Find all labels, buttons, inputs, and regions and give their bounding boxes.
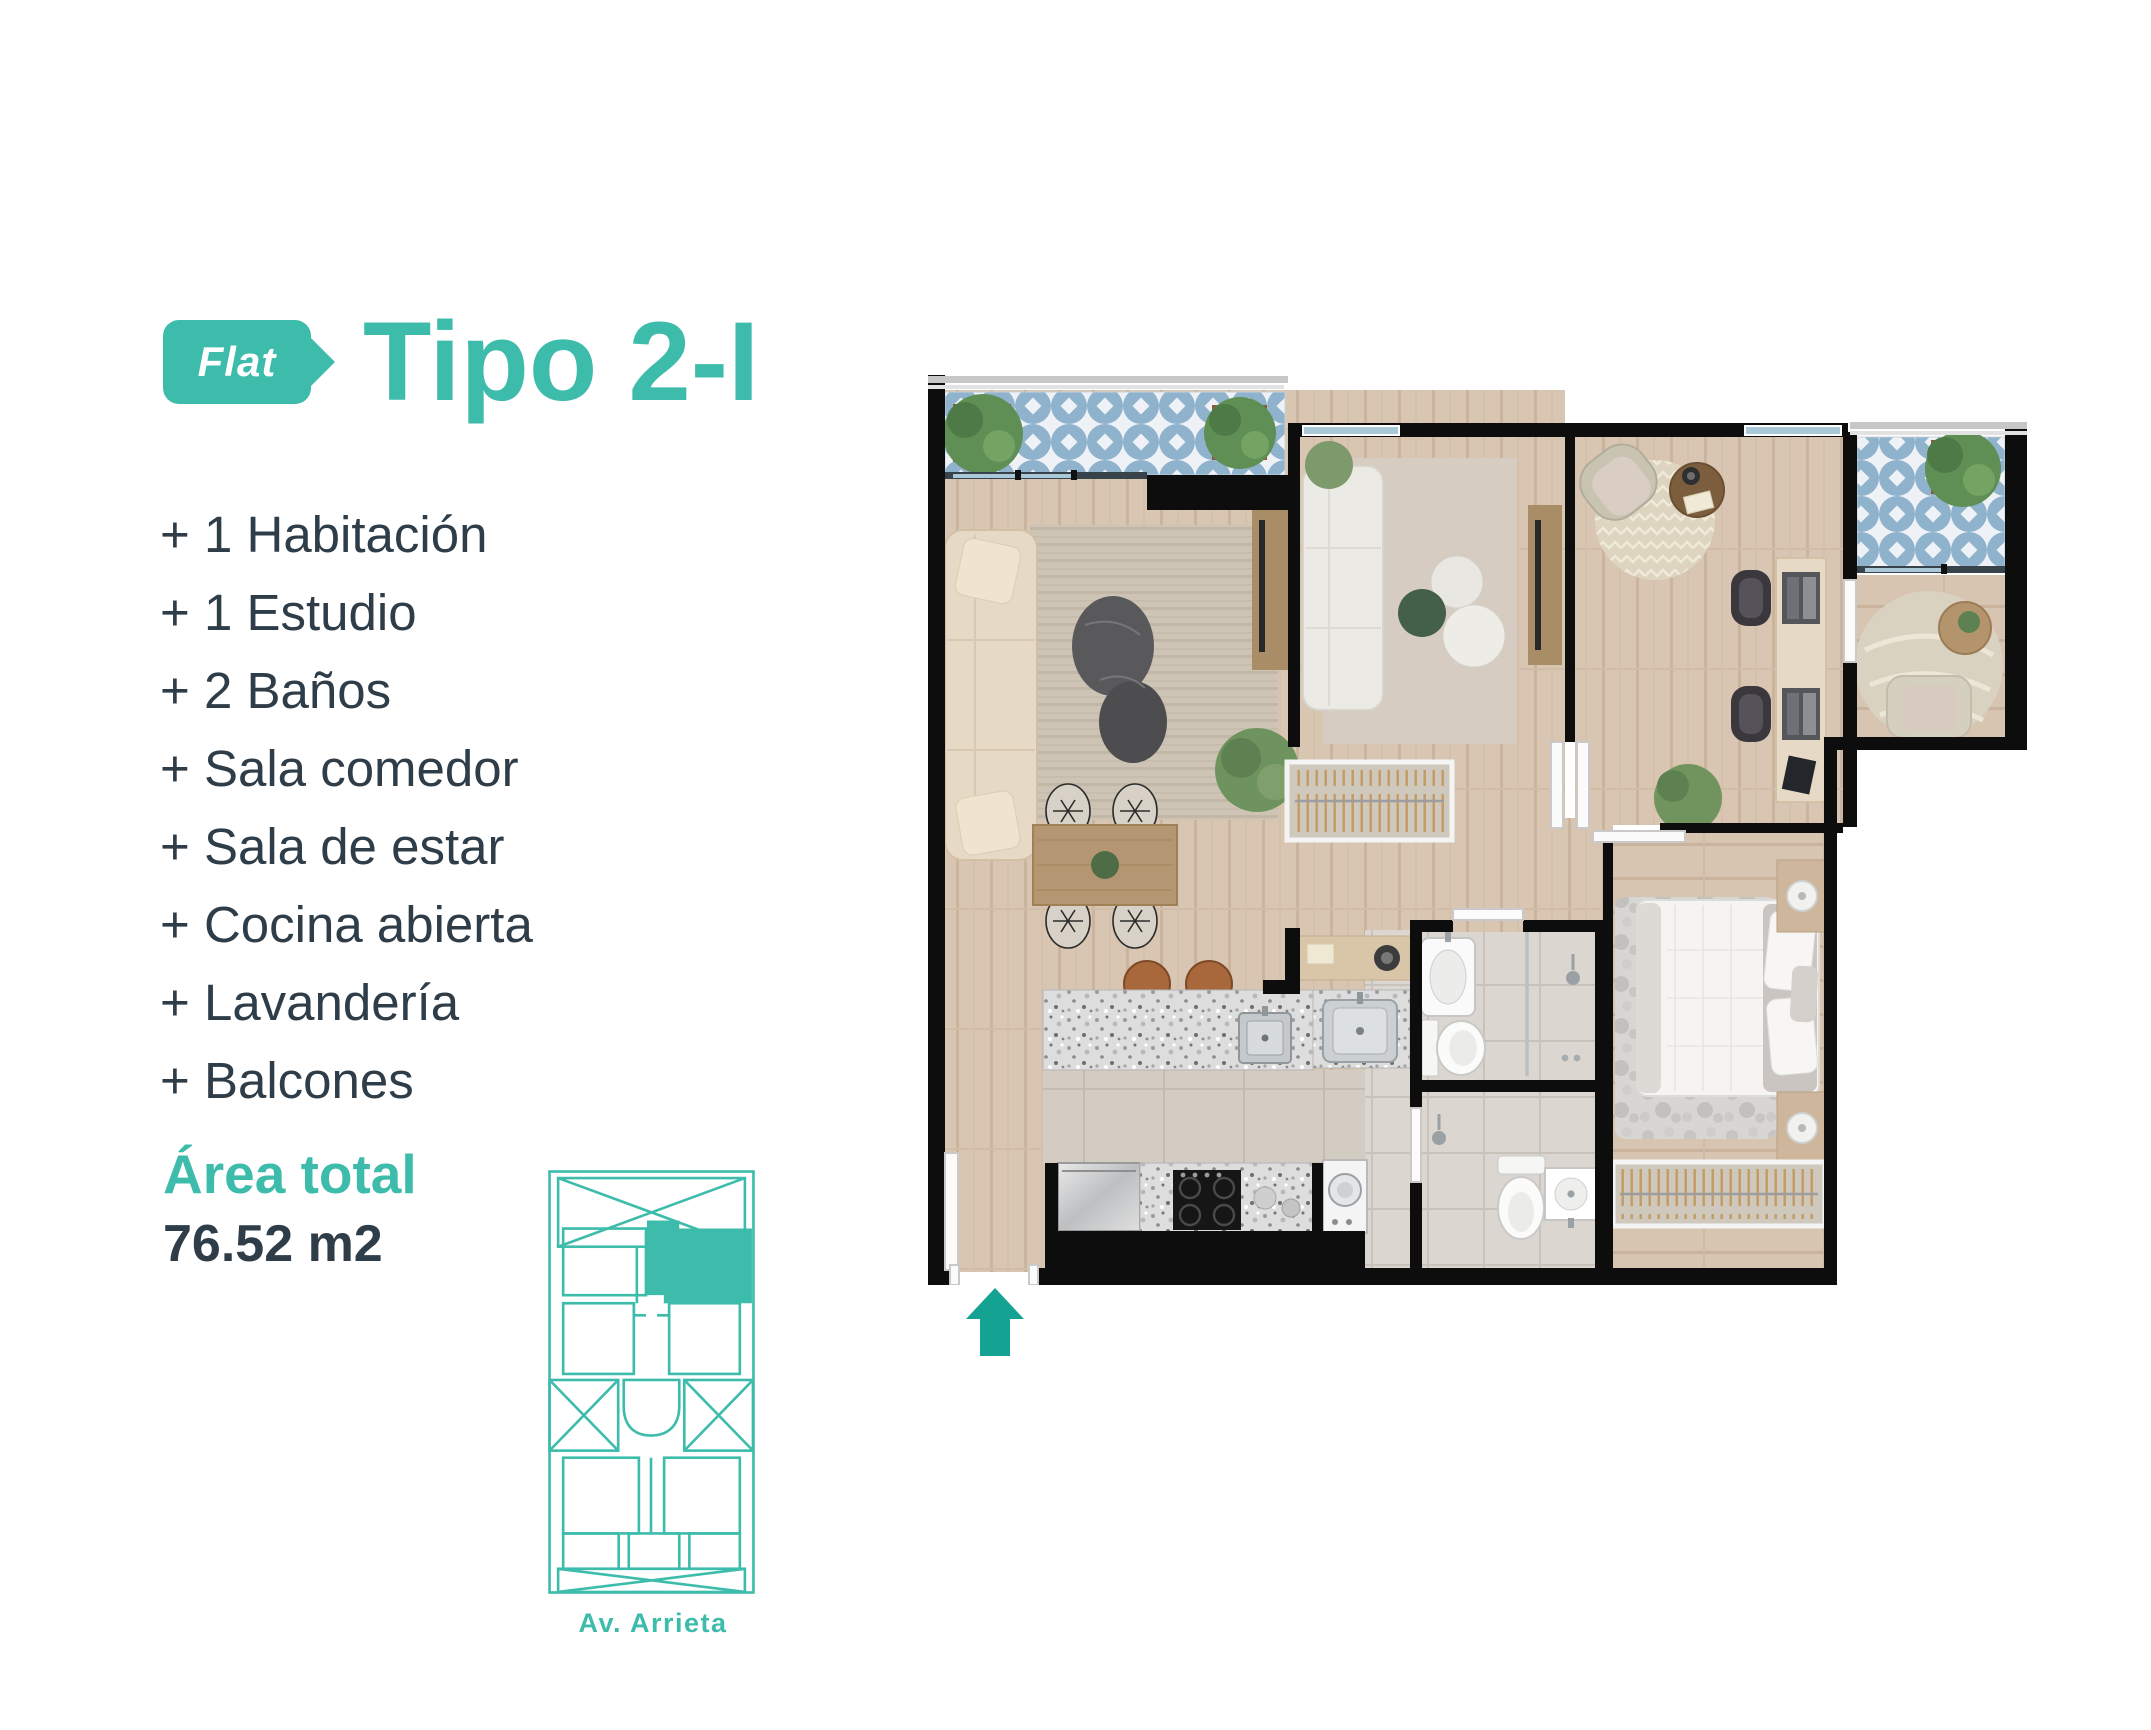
balcony-1-railing (928, 376, 1288, 383)
hallway-closet (1287, 762, 1452, 840)
void-cross-right (684, 1380, 753, 1451)
bedroom (1613, 860, 1827, 1226)
street-label: Av. Arrieta (528, 1608, 778, 1639)
feature-item: + Sala de estar (160, 808, 533, 886)
balcony-2-railing (1850, 422, 2027, 429)
console-book (1307, 944, 1334, 964)
entrance-door (945, 1153, 958, 1270)
flat-badge: Flat (163, 320, 311, 404)
coffee-table (1072, 596, 1154, 696)
feature-item: + Lavandería (160, 964, 533, 1042)
white-sofa (1303, 466, 1383, 710)
green-marble-table (1398, 589, 1446, 637)
bathroom-2-door (1411, 1108, 1421, 1182)
toilet-tank (1498, 1156, 1545, 1174)
tv-screen (1535, 520, 1541, 650)
kitchen-floor (1043, 1070, 1365, 1165)
sofa-pillow (954, 537, 1023, 606)
laundry-floor (1365, 930, 1411, 1272)
unit-outline (563, 1303, 634, 1374)
unit-outline (563, 1458, 639, 1534)
laptop (1782, 572, 1820, 624)
feature-item: + 2 Baños (160, 652, 533, 730)
desk-chair (1731, 570, 1771, 626)
nook-plant (1958, 611, 1980, 633)
plant (1305, 441, 1353, 489)
feature-list: + 1 Habitación + 1 Estudio + 2 Baños + S… (160, 496, 533, 1120)
pocket-door (1577, 742, 1589, 828)
unit-outline (629, 1533, 679, 1568)
entrance-arrow (966, 1288, 1024, 1361)
nook-door (1844, 580, 1856, 662)
window (1303, 426, 1399, 435)
tv-panel (1528, 505, 1562, 665)
bowl (1282, 1199, 1300, 1217)
feature-item: + 1 Estudio (160, 574, 533, 652)
fridge (1058, 1163, 1140, 1231)
flat-badge-label: Flat (198, 338, 277, 386)
building-key-plan-diagram (548, 1170, 755, 1594)
bed-throw (1637, 903, 1661, 1093)
up-arrow-icon (966, 1288, 1024, 1356)
floor-plan-drawing (925, 370, 2035, 1285)
area-total-label: Área total (163, 1142, 417, 1206)
pocket-door (1551, 742, 1563, 828)
faucet (1262, 1006, 1268, 1016)
tv-panel-living (1252, 505, 1288, 670)
feature-item: + Balcones (160, 1042, 533, 1120)
shower-head (1432, 1131, 1446, 1145)
laptop (1782, 688, 1820, 740)
pillow-small (1790, 965, 1819, 1022)
window (1745, 426, 1841, 435)
toilet-tank (1422, 1020, 1438, 1076)
building-key-plan (548, 1170, 755, 1599)
coffee-table (1099, 681, 1167, 763)
page-title: Tipo 2-I (363, 306, 759, 418)
round-table (1443, 605, 1505, 667)
table-plant (1091, 851, 1119, 879)
unit-outline (563, 1229, 646, 1296)
unit-outline (664, 1458, 740, 1534)
highlighted-unit (647, 1220, 752, 1303)
floor-plan (925, 370, 2035, 1290)
bowl (1254, 1187, 1276, 1209)
feature-item: + Cocina abierta (160, 886, 533, 964)
lobby-shape (624, 1380, 680, 1436)
desk-chair (1731, 686, 1771, 742)
bedroom-closet (1613, 1162, 1825, 1226)
bathroom-1-slider (1453, 909, 1523, 920)
shower-head (1566, 971, 1580, 985)
unit-outline (563, 1533, 619, 1568)
void-cross-left (550, 1380, 619, 1451)
header: Flat Tipo 2-I (163, 306, 759, 418)
feature-item: + Sala comedor (160, 730, 533, 808)
tv-screen (1259, 520, 1265, 652)
faucet (1568, 1218, 1574, 1228)
bedroom-slider (1593, 831, 1685, 842)
unit-outline (669, 1303, 740, 1374)
stairs-cross-bottom (558, 1569, 745, 1592)
feature-item: + 1 Habitación (160, 496, 533, 574)
area-total-value: 76.52 m2 (163, 1214, 383, 1274)
sofa-pillow (954, 789, 1021, 856)
flat-type-sheet: Flat Tipo 2-I + 1 Habitación + 1 Estudio… (0, 0, 2151, 1730)
unit-outline (689, 1533, 739, 1568)
